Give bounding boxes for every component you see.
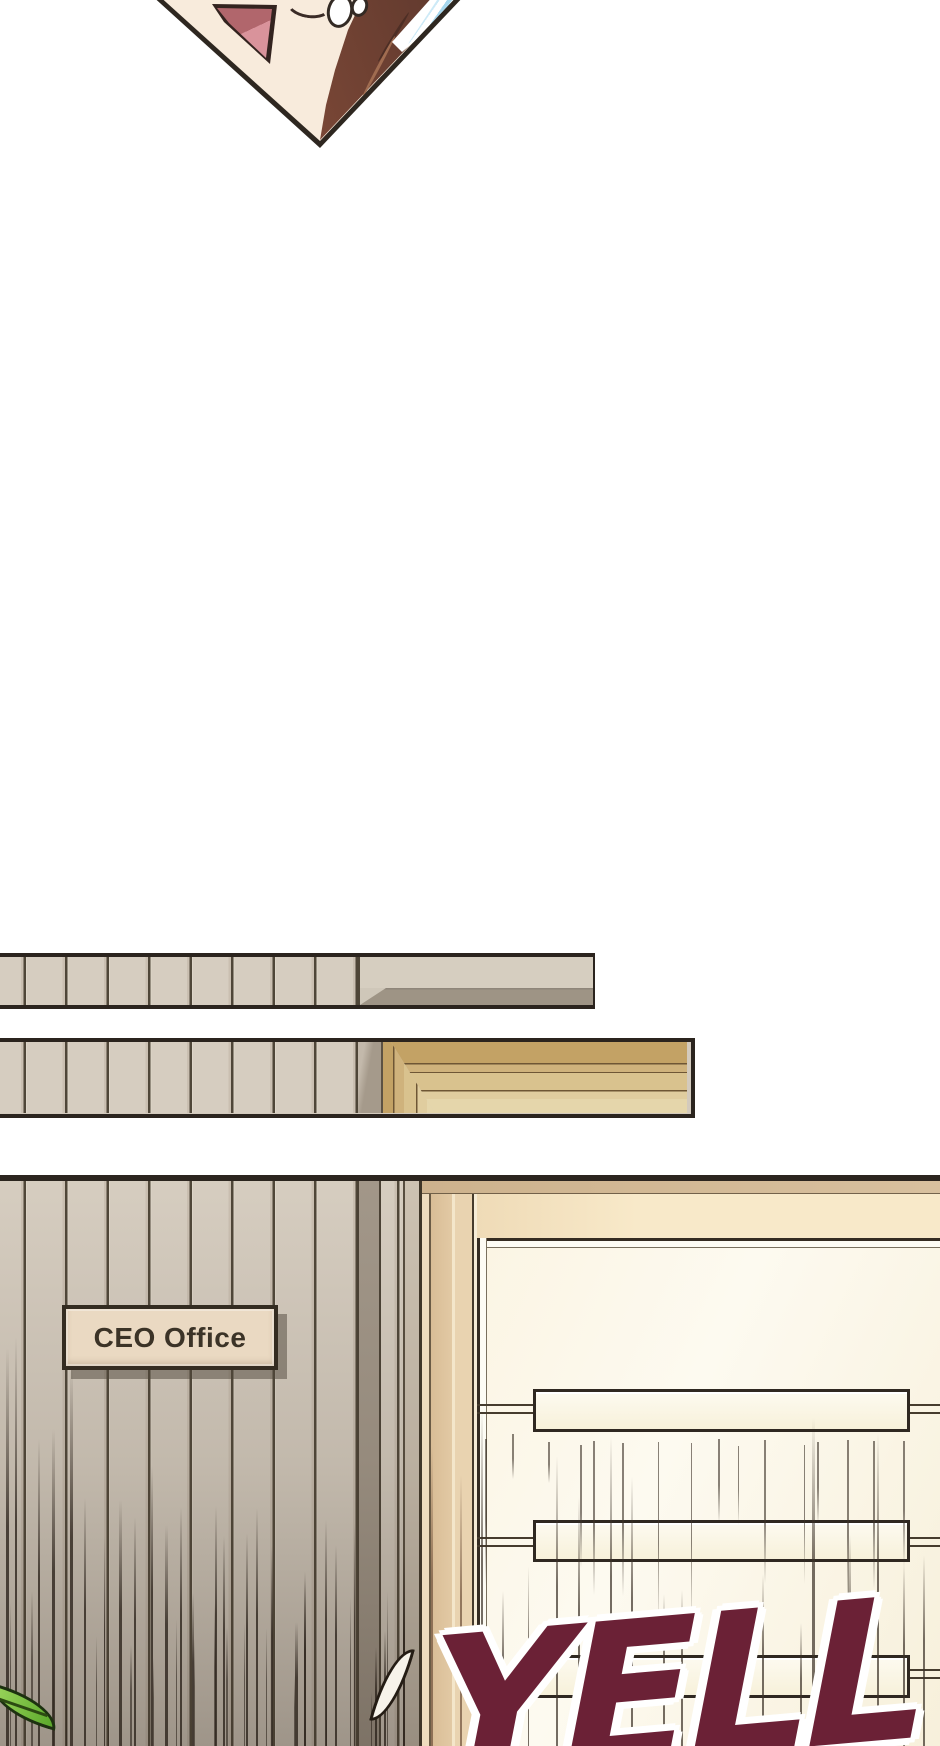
speed-line [512,1434,514,1479]
speed-line [718,1439,720,1523]
speed-line [66,1640,67,1746]
speed-line [70,1367,73,1746]
speed-line [295,1622,297,1746]
speed-line [548,1442,550,1484]
speed-line [96,1636,97,1746]
speed-line [226,1627,227,1746]
speed-line [354,1523,356,1746]
speed-line [304,1581,305,1746]
speed-line [593,1441,595,1595]
speed-line [294,1676,295,1746]
speed-line [215,1506,217,1746]
speed-line [804,1445,806,1584]
speed-line [738,1446,739,1525]
comic-page: CEO Office YELL [0,0,940,1746]
speed-line [134,1517,136,1746]
speed-line [246,1533,248,1746]
speed-line [903,1441,905,1567]
speed-line [403,1553,405,1746]
speed-line [176,1619,177,1746]
speed-line [15,1337,17,1746]
speed-line [53,1659,54,1746]
speed-line [130,1645,131,1746]
speed-line [485,1439,487,1585]
speed-line [223,1536,225,1746]
speed-line [10,1603,11,1746]
speed-line [335,1545,337,1746]
speed-line [326,1670,327,1746]
speed-line [108,1697,109,1746]
speed-lines-layer [0,0,940,1746]
ceo-office-sign: CEO Office [62,1305,278,1370]
speed-line [350,1597,351,1746]
speed-line [580,1445,582,1568]
speed-line [271,1546,273,1746]
speed-line [266,1628,267,1746]
speed-line [764,1440,766,1583]
speed-line [84,1498,86,1746]
sign-label: CEO Office [94,1322,247,1354]
speed-line [119,1500,122,1746]
speed-line [194,1638,195,1746]
speed-line [180,1507,182,1746]
speed-line [165,1525,168,1746]
speed-line [256,1508,258,1746]
speed-line [214,1603,215,1746]
speed-line [153,1658,154,1746]
speed-line [817,1442,818,1525]
speed-line [38,1439,40,1746]
speed-line [104,1536,106,1746]
speed-line [6,1348,8,1746]
speed-line [387,1591,388,1746]
speed-line [622,1443,624,1595]
speed-line [244,1623,245,1746]
